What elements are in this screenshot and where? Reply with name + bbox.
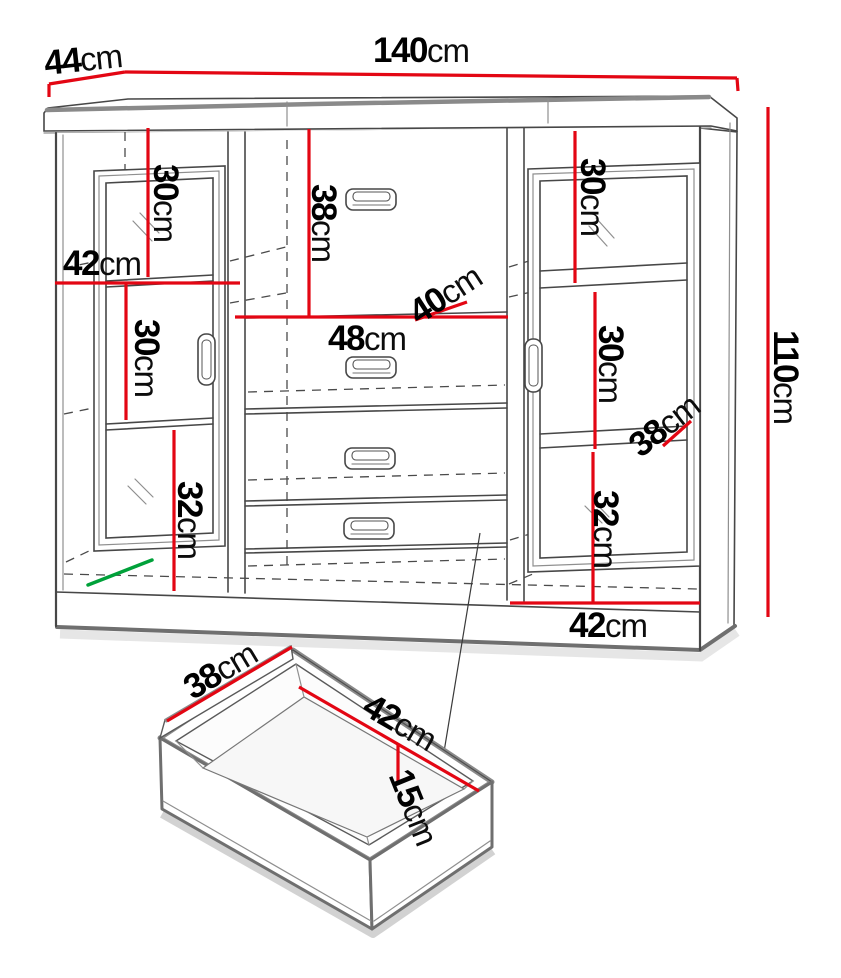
label-left-shelf-bottom: 32cm	[171, 481, 210, 559]
label-right-opening-width: 42cm	[569, 606, 647, 645]
drawer-handle-1	[346, 189, 396, 210]
drawer-handle-3	[345, 448, 395, 469]
label-middle-top-drawer: 38cm	[305, 184, 344, 262]
cabinet-top-panel	[44, 96, 737, 133]
right-door-handle	[525, 339, 542, 392]
label-width-top: 140cm	[373, 31, 469, 70]
label-right-shelf-mid: 30cm	[592, 325, 631, 403]
cabinet-right-side	[700, 128, 737, 650]
drawer-handle-2	[346, 357, 396, 378]
left-door-handle	[198, 334, 215, 385]
label-left-shelf-mid: 30cm	[128, 319, 167, 397]
diagram-canvas: 44cm 140cm 110cm 30cm 42cm 30cm 32cm 38c…	[0, 0, 841, 978]
label-left-shelf-top: 30cm	[147, 164, 186, 242]
furniture-dimension-diagram: 44cm 140cm 110cm 30cm 42cm 30cm 32cm 38c…	[0, 0, 841, 978]
drawer-handle-4	[344, 518, 394, 539]
label-middle-opening-width: 48cm	[328, 319, 406, 358]
label-height-right: 110cm	[767, 330, 806, 424]
label-right-shelf-top: 30cm	[574, 158, 613, 236]
dim-line-width-top	[125, 72, 738, 91]
label-right-shelf-bottom: 32cm	[587, 490, 626, 568]
label-left-opening-width: 42cm	[63, 244, 141, 283]
